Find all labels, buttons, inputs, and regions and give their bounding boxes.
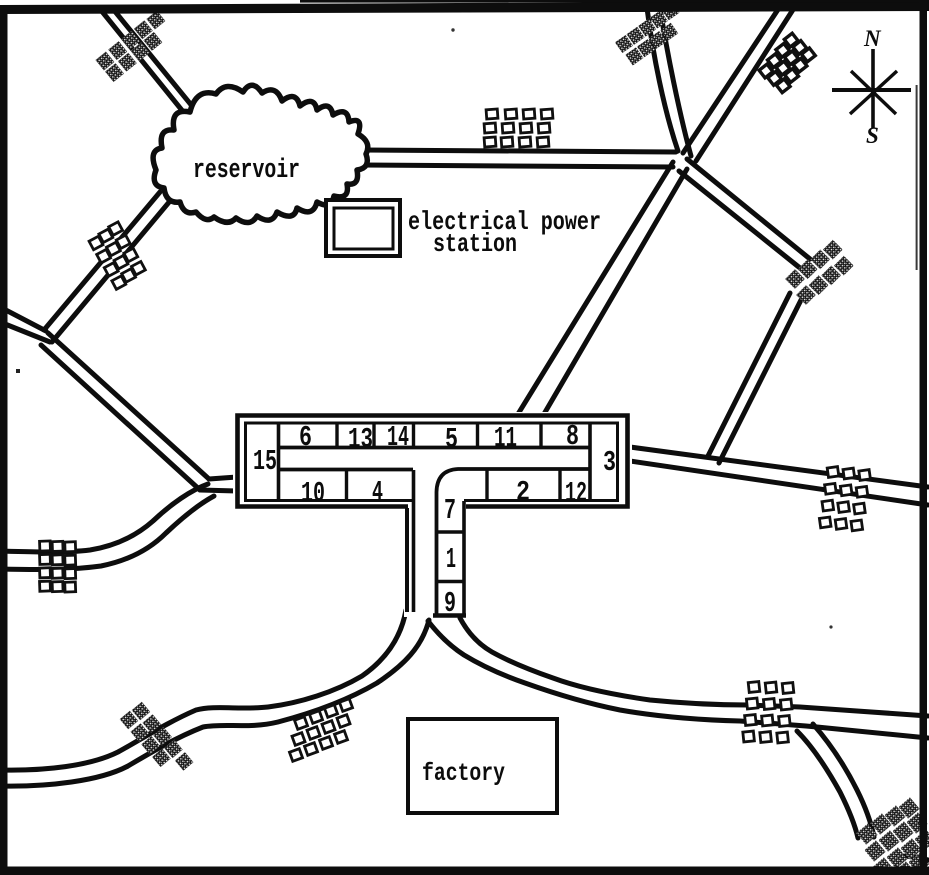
svg-text:2: 2 xyxy=(516,476,530,509)
svg-text:10: 10 xyxy=(301,477,325,510)
svg-text:11: 11 xyxy=(494,422,517,455)
svg-text:7: 7 xyxy=(444,494,456,527)
svg-text:8: 8 xyxy=(566,420,579,453)
svg-text:3: 3 xyxy=(603,446,616,479)
svg-text:15: 15 xyxy=(253,445,277,478)
svg-text:factory: factory xyxy=(422,759,505,788)
svg-text:12: 12 xyxy=(565,477,587,510)
svg-text:14: 14 xyxy=(387,421,409,454)
svg-text:13: 13 xyxy=(348,423,373,456)
svg-text:6: 6 xyxy=(299,421,312,454)
svg-text:station: station xyxy=(433,229,517,259)
svg-text:reservoir: reservoir xyxy=(193,156,300,186)
svg-text:4: 4 xyxy=(372,476,383,509)
svg-text:9: 9 xyxy=(444,587,456,620)
svg-text:S: S xyxy=(866,123,879,148)
svg-text:1: 1 xyxy=(446,543,456,576)
svg-text:5: 5 xyxy=(445,423,458,456)
svg-text:N: N xyxy=(863,26,882,51)
